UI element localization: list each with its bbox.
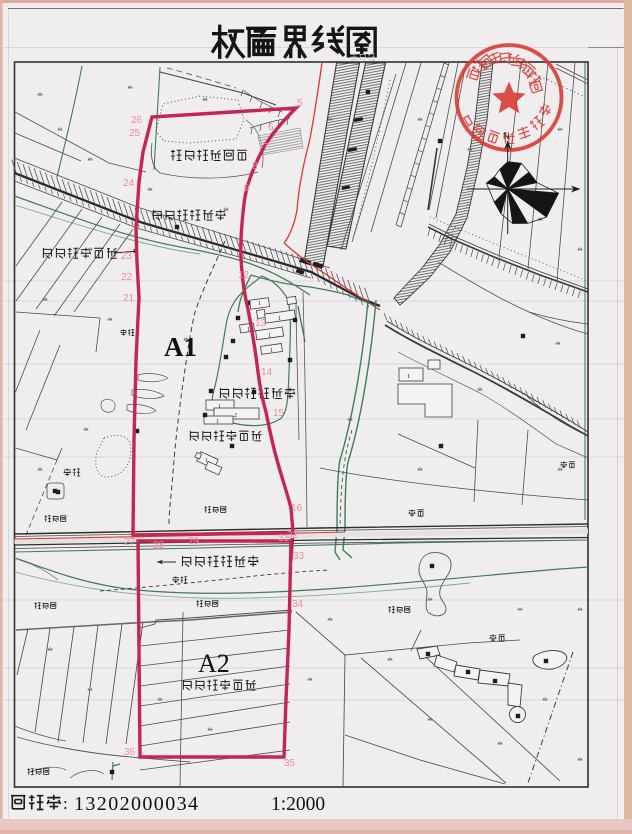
- svg-text:1: 1: [216, 419, 219, 425]
- svg-text:A2: A2: [198, 649, 230, 678]
- svg-text:9: 9: [244, 183, 250, 194]
- svg-text:12: 12: [238, 270, 250, 281]
- svg-text:1: 1: [258, 301, 261, 307]
- svg-text:2: 2: [234, 413, 237, 419]
- svg-text:15: 15: [273, 408, 285, 419]
- svg-text:1: 1: [268, 333, 271, 339]
- svg-text:6: 6: [268, 122, 274, 133]
- svg-text:21: 21: [123, 293, 135, 304]
- svg-text:1:2000: 1:2000: [271, 794, 325, 815]
- svg-text:23: 23: [121, 251, 133, 262]
- svg-text:33: 33: [293, 551, 305, 562]
- svg-text:8: 8: [252, 161, 258, 172]
- svg-text:14: 14: [261, 367, 273, 378]
- svg-text:16: 16: [291, 503, 303, 514]
- svg-text:1: 1: [407, 373, 410, 380]
- svg-text:24: 24: [123, 178, 135, 189]
- svg-text:1: 1: [278, 316, 281, 322]
- svg-text:A1: A1: [164, 332, 197, 362]
- svg-text:1: 1: [247, 327, 250, 333]
- svg-text:N: N: [503, 131, 510, 141]
- svg-text:36: 36: [124, 747, 136, 758]
- svg-text:25: 25: [129, 128, 141, 139]
- svg-text:1: 1: [218, 404, 221, 410]
- svg-text:27: 27: [124, 537, 136, 548]
- svg-text:1: 1: [270, 348, 273, 354]
- svg-text::: :: [63, 794, 68, 813]
- svg-text:35: 35: [284, 758, 296, 769]
- svg-text:5: 5: [297, 98, 303, 109]
- svg-text:34: 34: [292, 599, 304, 610]
- svg-text:13: 13: [255, 318, 267, 329]
- svg-text:29: 29: [188, 536, 200, 547]
- svg-text:28: 28: [153, 540, 165, 551]
- svg-text:1: 1: [205, 458, 208, 464]
- svg-text:7: 7: [263, 142, 269, 153]
- svg-text:26: 26: [131, 115, 143, 126]
- svg-text:13202000034: 13202000034: [74, 793, 199, 815]
- svg-text:32: 32: [287, 530, 299, 541]
- svg-text:22: 22: [121, 272, 133, 283]
